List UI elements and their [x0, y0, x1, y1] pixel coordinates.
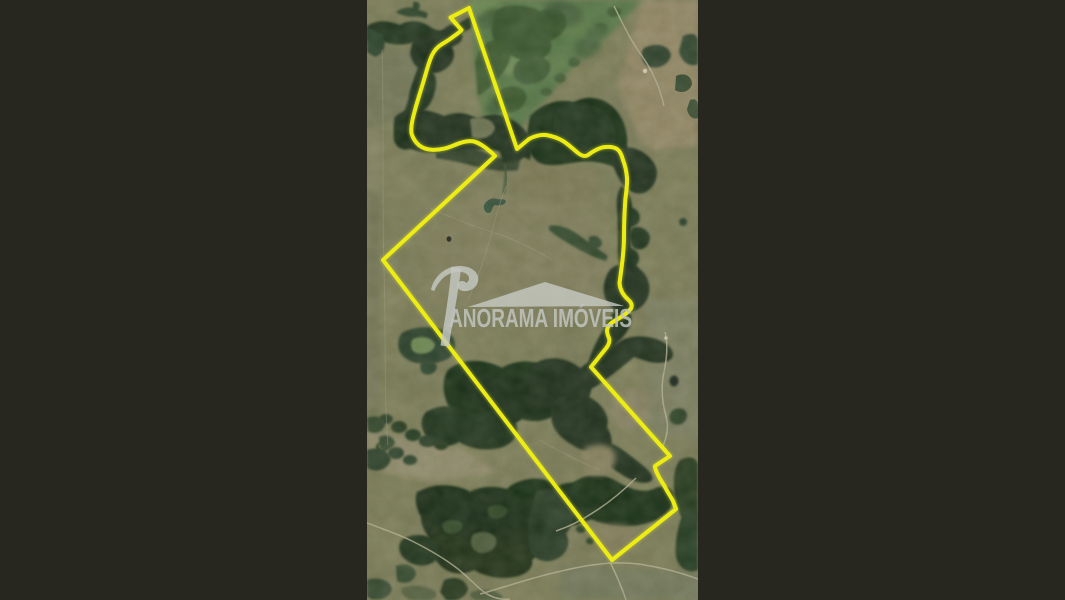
- svg-text:ANORAMA IMÓVEIS: ANORAMA IMÓVEIS: [449, 303, 632, 333]
